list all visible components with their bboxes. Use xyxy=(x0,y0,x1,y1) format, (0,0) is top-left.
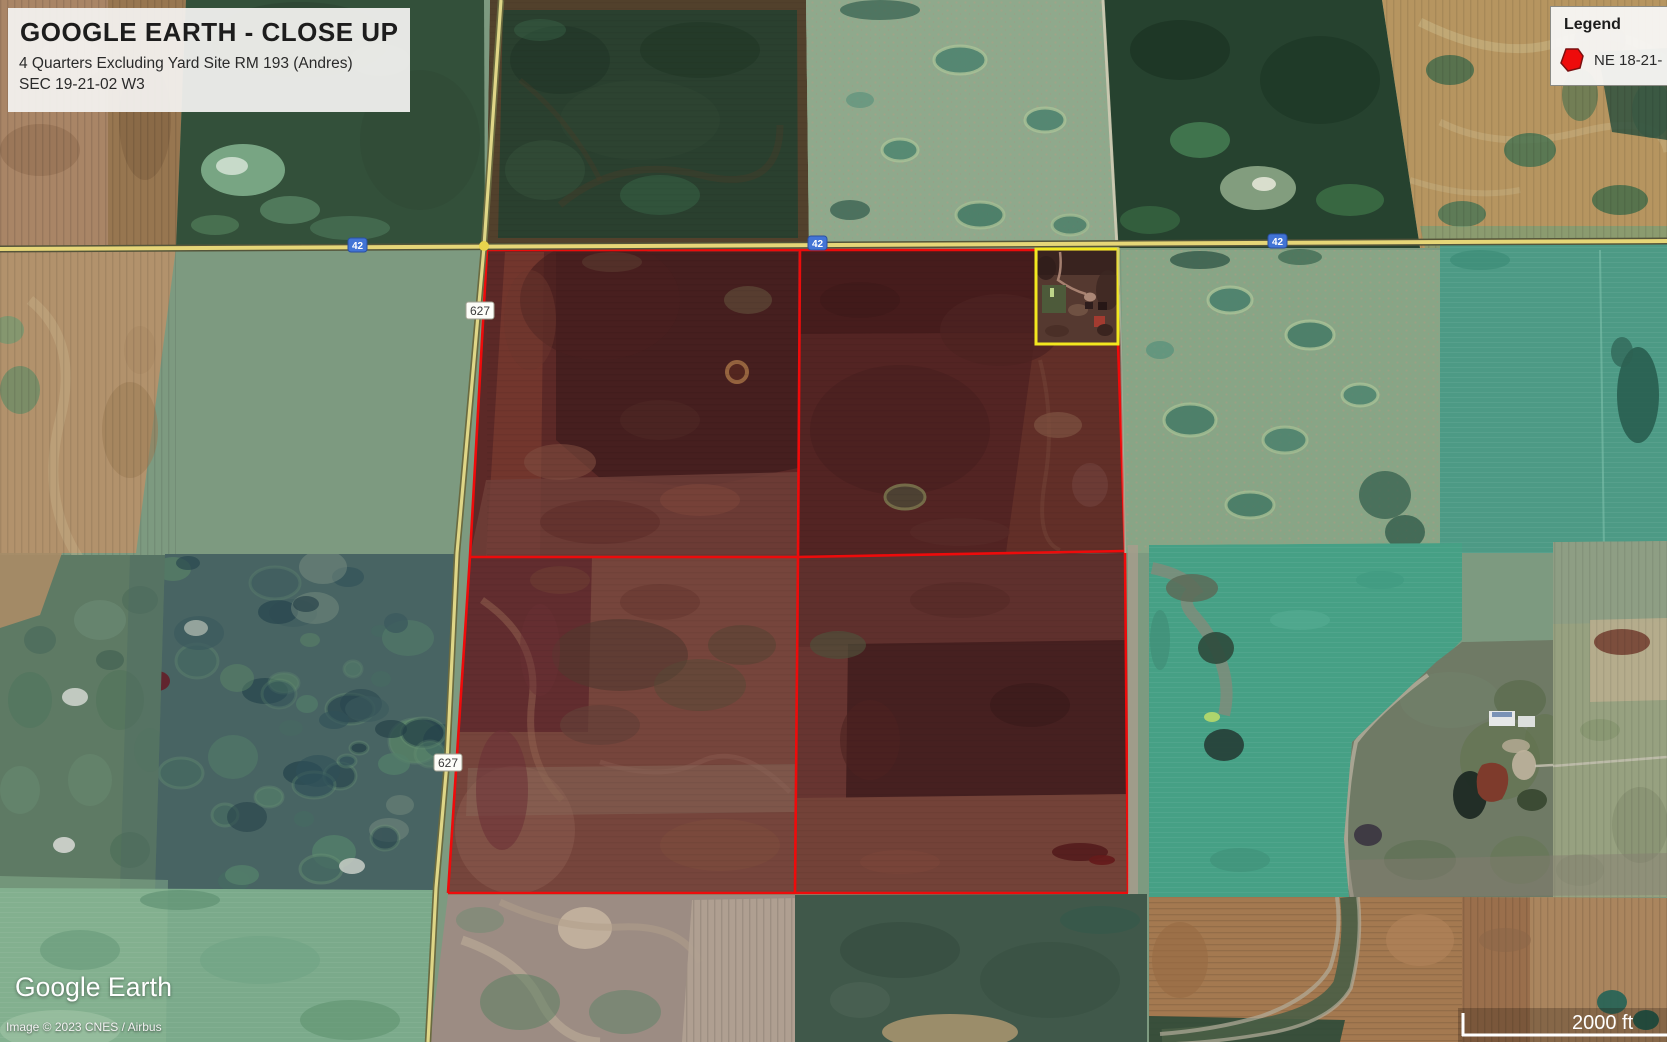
svg-text:2000 ft: 2000 ft xyxy=(1572,1012,1634,1034)
svg-text:627: 627 xyxy=(438,756,458,770)
svg-text:42: 42 xyxy=(1272,237,1284,248)
svg-text:627: 627 xyxy=(470,304,490,318)
svg-text:42: 42 xyxy=(352,241,364,252)
svg-text:42: 42 xyxy=(812,239,824,250)
